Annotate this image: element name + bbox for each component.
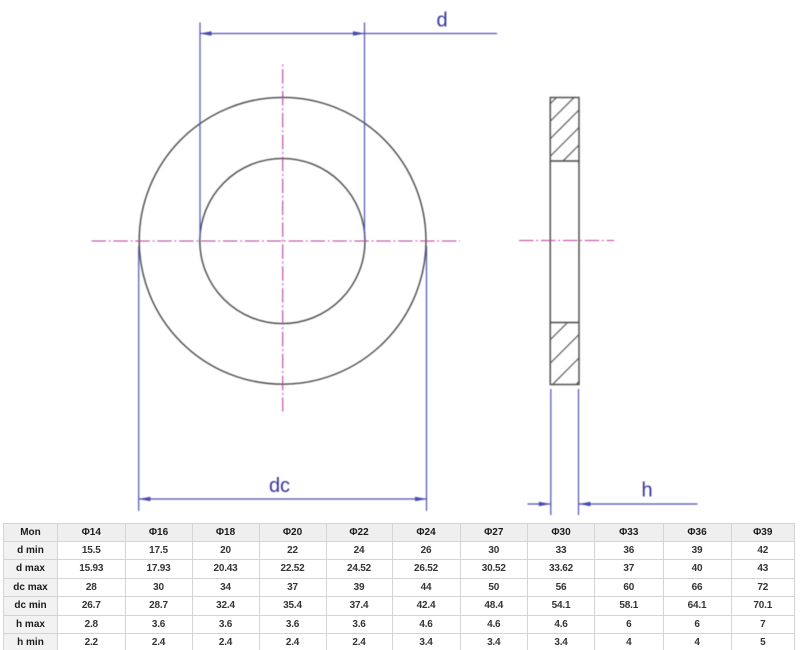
svg-text:dc: dc bbox=[269, 475, 290, 497]
svg-text:h: h bbox=[641, 480, 652, 502]
svg-text:d: d bbox=[436, 10, 447, 32]
